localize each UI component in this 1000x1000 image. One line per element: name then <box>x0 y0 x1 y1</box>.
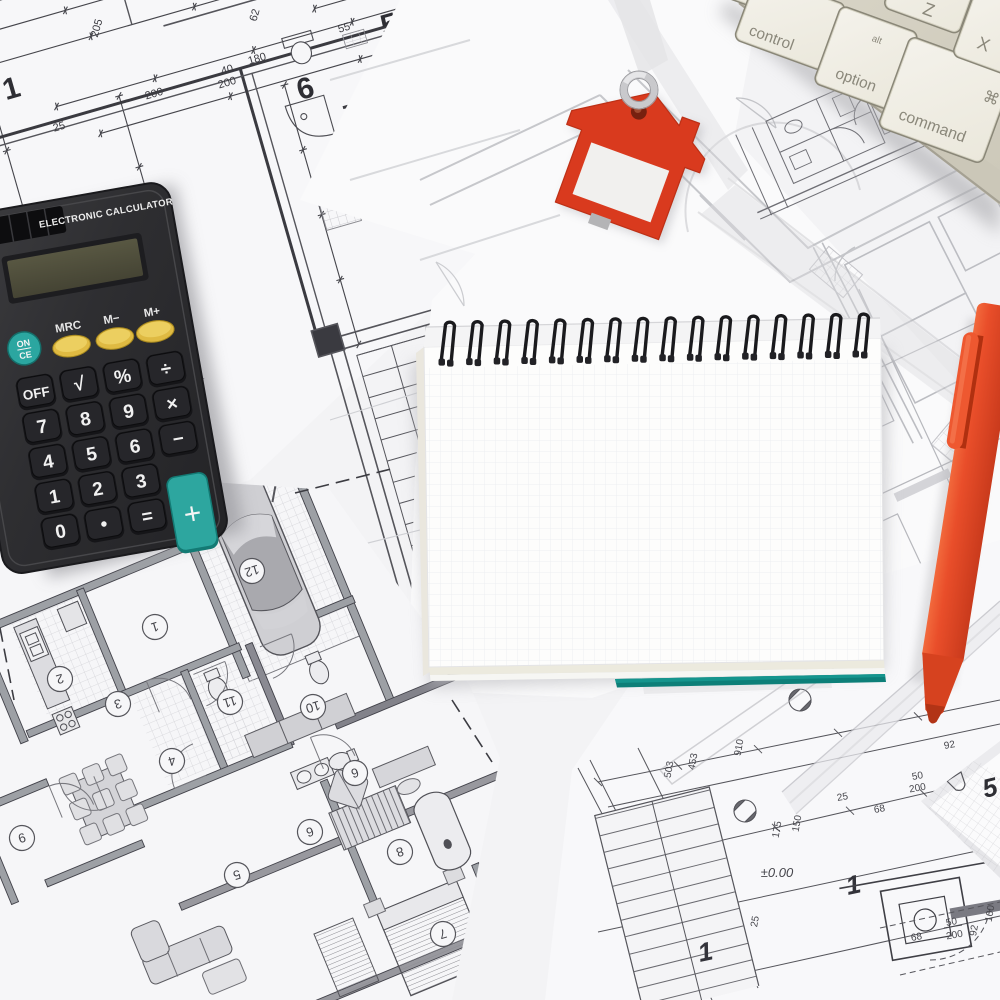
svg-text:CE: CE <box>18 349 32 361</box>
svg-text:±0.00: ±0.00 <box>761 865 794 880</box>
